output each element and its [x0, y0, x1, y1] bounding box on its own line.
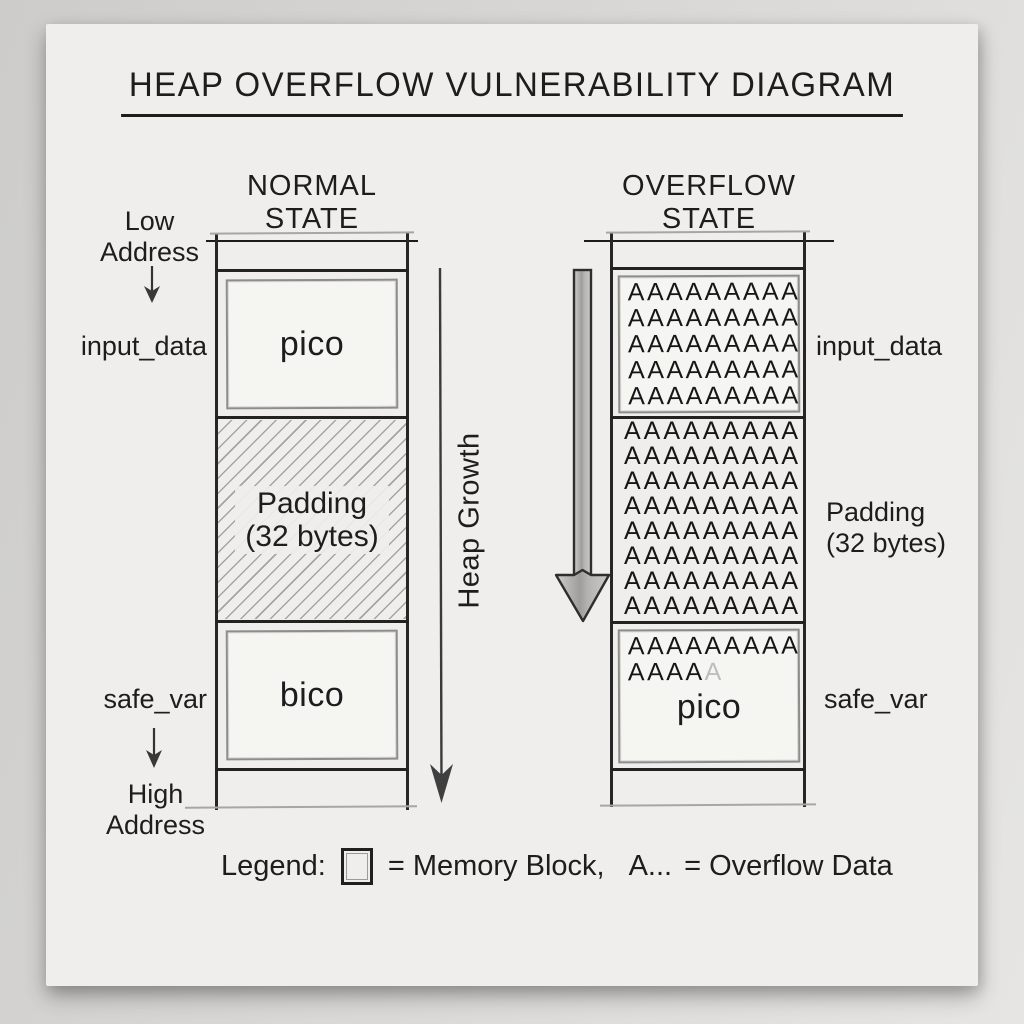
overflow-safe-rows: AAAAAAAAA AAAAA pico: [620, 633, 799, 762]
overflow-row: AAAAAAAAA: [620, 331, 798, 358]
overflow-safe-var-value: pico: [620, 688, 798, 728]
padding-label-line2: (32 bytes): [245, 520, 378, 553]
safe-var-label-left: safe_var: [78, 684, 207, 715]
legend: Legend: = Memory Block, A... = Overflow …: [221, 848, 893, 885]
partial-faded: A: [705, 658, 724, 686]
normal-line-4: [215, 768, 409, 771]
input-data-label-right: input_data: [816, 331, 942, 362]
title-wrap: HEAP OVERFLOW VULNERABILITY DIAGRAM: [0, 66, 1024, 117]
overflow-safe-var-block: AAAAAAAAA AAAAA pico: [618, 629, 801, 764]
normal-line-3: [215, 620, 409, 623]
normal-safe-var-value: bico: [228, 632, 397, 759]
overflow-row: AAAAAAAAA: [612, 419, 804, 444]
heap-growth-label: Heap Growth: [454, 432, 487, 608]
overflow-row: AAAAAAAAA: [612, 469, 804, 494]
padding-label-right: Padding (32 bytes): [826, 497, 946, 559]
partial-dark: AAAA: [628, 658, 705, 686]
overflow-row: AAAAAAAAA: [620, 383, 798, 410]
overflow-row: AAAAAAAAA: [612, 594, 804, 619]
overflow-row: AAAAAAAAA: [612, 544, 804, 569]
memory-block-icon: [341, 848, 373, 885]
normal-padding-block: Padding (32 bytes): [218, 420, 406, 619]
safe-var-label-right: safe_var: [824, 684, 928, 715]
high-address-label: High Address: [98, 779, 213, 841]
normal-input-data-value: pico: [228, 281, 397, 408]
normal-line-1: [215, 269, 409, 272]
legend-overflow-text: = Overflow Data: [684, 850, 893, 883]
input-data-label-left: input_data: [68, 331, 207, 362]
padding-label-line1: Padding: [245, 487, 378, 520]
overflow-row: AAAAAAAAA: [612, 519, 804, 544]
overflow-line-1: [610, 267, 806, 270]
low-address-label: Low Address: [92, 206, 207, 268]
normal-input-data-block: pico: [226, 279, 399, 410]
overflow-row: AAAAAAAAA: [620, 305, 798, 332]
overflow-row: AAAAAAAAA: [620, 633, 798, 660]
overflow-input-rows: AAAAAAAAA AAAAAAAAA AAAAAAAAA AAAAAAAAA …: [620, 279, 799, 412]
low-address-line1: Low: [92, 206, 207, 237]
padding-right-line1: Padding: [826, 497, 946, 528]
overflow-line-4: [610, 768, 806, 771]
high-address-line1: High: [98, 779, 213, 810]
overflow-row: AAAAAAAAA: [620, 357, 798, 384]
page-title: HEAP OVERFLOW VULNERABILITY DIAGRAM: [121, 66, 903, 117]
legend-memory-block-text: = Memory Block,: [388, 850, 605, 883]
normal-padding-label: Padding (32 bytes): [235, 486, 388, 554]
overflow-row: AAAAAAAAA: [612, 494, 804, 519]
normal-line-2: [215, 416, 409, 419]
overflow-partial-row: AAAAA: [620, 659, 798, 686]
heap-growth-label-wrap: Heap Growth: [396, 444, 544, 596]
overflow-row: AAAAAAAAA: [620, 279, 798, 306]
overflow-line-3: [610, 621, 806, 624]
overflow-padding-rows: AAAAAAAAA AAAAAAAAA AAAAAAAAA AAAAAAAAA …: [612, 419, 804, 619]
overflow-input-data-block: AAAAAAAAA AAAAAAAAA AAAAAAAAA AAAAAAAAA …: [618, 275, 801, 414]
overflow-row: AAAAAAAAA: [612, 444, 804, 469]
legend-label: Legend:: [221, 850, 326, 883]
normal-safe-var-block: bico: [226, 630, 399, 761]
high-address-line2: Address: [98, 810, 213, 841]
legend-overflow-sample: A...: [629, 850, 673, 883]
diagram-photo: HEAP OVERFLOW VULNERABILITY DIAGRAM NORM…: [0, 0, 1024, 1024]
padding-right-line2: (32 bytes): [826, 528, 946, 559]
low-address-line2: Address: [92, 237, 207, 268]
overflow-row: AAAAAAAAA: [612, 569, 804, 594]
